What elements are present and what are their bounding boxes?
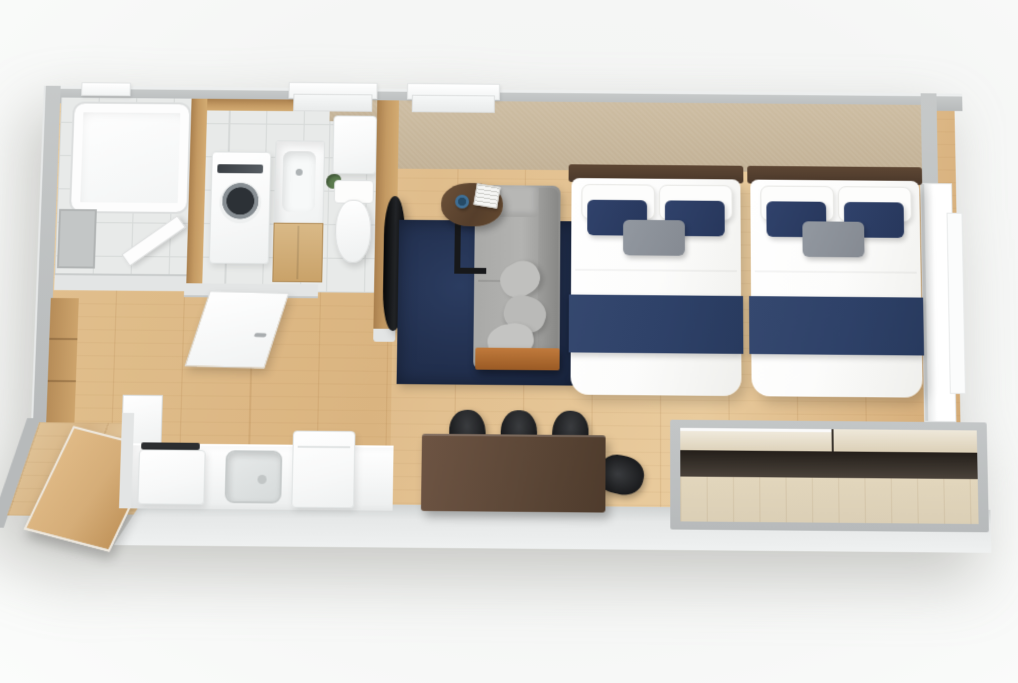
vanity-sink (274, 140, 326, 225)
book-cube (473, 183, 500, 208)
window-2-inner (412, 95, 495, 113)
bed2 (750, 180, 922, 398)
floor-plan-render (0, 0, 1018, 683)
bathtub (69, 102, 192, 214)
cooktop (137, 449, 205, 505)
bathroom-wall-panel (57, 209, 97, 269)
fridge-seam (298, 446, 351, 448)
bed2-duvet-fold (755, 270, 917, 273)
cistern-cabinet (332, 115, 377, 174)
bed2-throw-navy (749, 296, 924, 355)
balcony-window-frame (947, 213, 966, 394)
apartment-unit (16, 80, 1000, 562)
coffee-cup (455, 195, 469, 209)
kitchen-sink (225, 450, 283, 503)
bed2-pillow-gray (802, 221, 864, 257)
closet-shadow-gap (680, 450, 977, 479)
dining-table (421, 434, 606, 513)
window-1-inner (293, 94, 372, 112)
hall-closet-wall (46, 298, 79, 425)
refrigerator (291, 431, 355, 509)
bed1-pillow-gray (623, 220, 685, 256)
washing-machine (209, 151, 272, 264)
sofa-backrest (537, 188, 558, 369)
closet-sliding-door (833, 428, 977, 454)
bed1 (570, 178, 741, 396)
washer-control-panel (217, 164, 263, 173)
table-leg (454, 222, 461, 273)
closet-floor (680, 477, 978, 524)
window-sill-bathroom (81, 82, 131, 96)
door-handle (254, 333, 267, 337)
sofa-wood-base (475, 348, 560, 371)
sink-basin (282, 151, 316, 212)
closet-interior (680, 428, 978, 524)
cabinet-seam (296, 226, 299, 279)
vanity-cabinet (272, 223, 323, 283)
washer-door (219, 182, 262, 224)
sink-drain (257, 475, 266, 484)
table-leg (454, 268, 486, 274)
bed1-duvet-fold (575, 269, 737, 272)
bed1-throw-navy (569, 295, 744, 354)
bathroom-lower-wall (54, 273, 186, 291)
